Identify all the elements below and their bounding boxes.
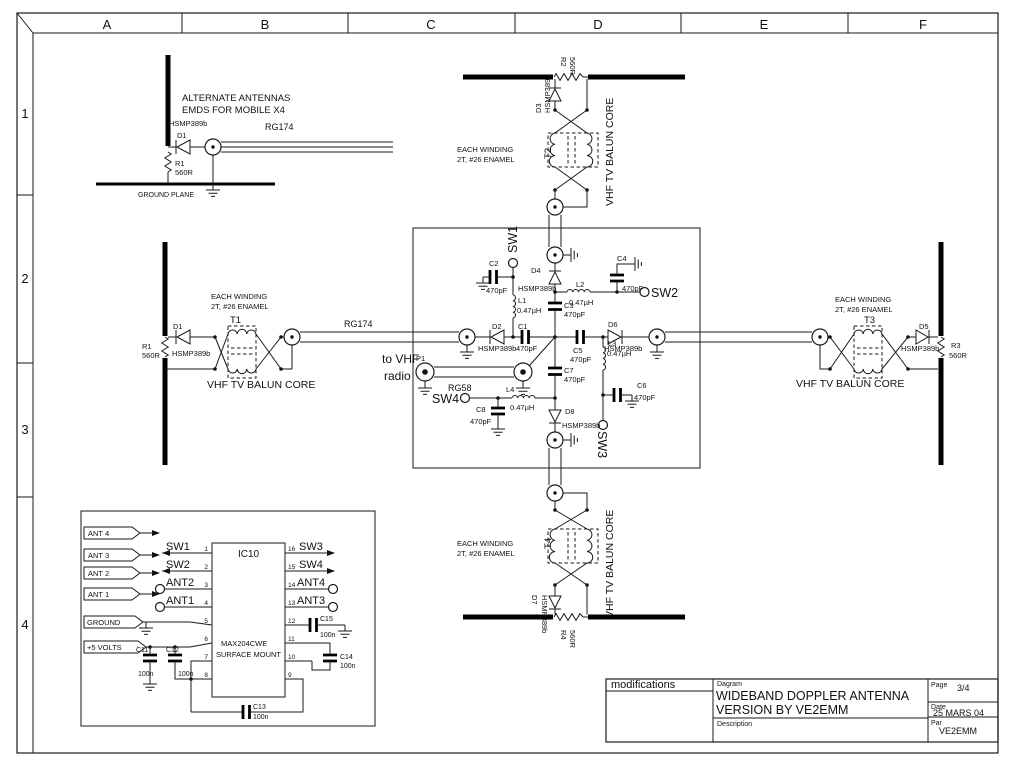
l3-label: L3 xyxy=(608,339,616,348)
c4-value: 470pF xyxy=(622,284,644,293)
c13-label: C13 xyxy=(253,704,266,711)
to-vhf-radio-note: to VHF radio xyxy=(382,352,419,383)
sw1-label: SW1 xyxy=(506,226,520,253)
d6-label: D6 xyxy=(608,320,618,329)
c2-label: C2 xyxy=(489,259,499,268)
title-line2: VERSION BY VE2EMM xyxy=(716,703,848,717)
pin5-number: 5 xyxy=(204,618,208,625)
pin1-number: 1 xyxy=(204,546,208,553)
c11-label: C11 xyxy=(136,647,148,654)
l1-label: L1 xyxy=(518,296,526,305)
description-label: Description xyxy=(717,721,752,728)
pin16-signal: SW3 xyxy=(299,541,323,553)
t4-balun-note: VHF TV BALUN CORE xyxy=(604,510,616,618)
c3-value: 470pF xyxy=(564,310,586,319)
t1-balun-note: VHF TV BALUN CORE xyxy=(207,379,315,391)
pin10-number: 10 xyxy=(288,654,296,661)
pin12-number: 12 xyxy=(288,618,296,625)
r2-value: 560R xyxy=(568,57,577,76)
t1-label: T1 xyxy=(230,315,241,326)
alt-diode-part: HSMP389b xyxy=(169,119,207,128)
grid-col-b: B xyxy=(261,17,270,32)
top-antenna-arm: R2 560R D3 HSMP389b T2 VHF TV BALUN CORE… xyxy=(457,57,685,247)
r2-label: R2 xyxy=(559,57,568,67)
switch-box: D4 HSMP389b C3 470pF C7 470pF D8 HSMP389… xyxy=(413,226,700,468)
c14-label: C14 xyxy=(340,654,353,661)
page-label: Page xyxy=(931,682,947,689)
c5-value: 470pF xyxy=(570,355,592,364)
modifications-label: modifications xyxy=(611,679,676,691)
flag-ant2: ANT 2 xyxy=(88,569,109,578)
d8-part: HSMP389b xyxy=(562,421,600,430)
l2-value: 0.47µH xyxy=(569,298,593,307)
c4-label: C4 xyxy=(617,254,627,263)
grid-row-1: 1 xyxy=(21,106,28,121)
flag-ant4: ANT 4 xyxy=(88,529,109,538)
c12-label: C12 xyxy=(166,647,179,654)
d2-part: HSMP389b xyxy=(478,344,516,353)
d3-label: D3 xyxy=(534,103,543,113)
ic10-mount: SURFACE MOUNT xyxy=(216,650,281,659)
flag-ant3: ANT 3 xyxy=(88,551,109,560)
pin3-signal: ANT2 xyxy=(166,577,194,589)
c15-value: 100n xyxy=(320,632,336,639)
right-antenna-arm: R3 560R D5 HSMP389b EACH WINDING 2T, #26… xyxy=(665,242,968,465)
d8-label: D8 xyxy=(565,407,575,416)
r3-value: 560R xyxy=(949,351,968,360)
title-line1: WIDEBAND DOPPLER ANTENNA xyxy=(716,689,910,703)
l4-label: L4 xyxy=(506,385,514,394)
c7-label: C7 xyxy=(564,366,574,375)
t3-winding-spec: 2T, #26 ENAMEL xyxy=(835,305,893,314)
page-value: 3/4 xyxy=(957,683,970,693)
ic10-label: IC10 xyxy=(238,549,260,560)
pin8-number: 8 xyxy=(204,672,208,679)
d5-label: D5 xyxy=(919,322,929,331)
c6-value: 470pF xyxy=(634,393,656,402)
d7-part: HSMP389b xyxy=(540,595,549,633)
grid-col-c: C xyxy=(426,17,435,32)
d3-part: HSMP389b xyxy=(543,75,552,113)
alternate-antenna-circuit: ALTERNATE ANTENNAS EMDS FOR MOBILE X4 HS… xyxy=(96,55,393,199)
t3-balun-note: VHF TV BALUN CORE xyxy=(796,378,904,390)
c1-label: C1 xyxy=(518,322,528,331)
par-value: VE2EMM xyxy=(939,726,977,736)
pin9-number: 9 xyxy=(288,672,292,679)
alt-diode-label: D1 xyxy=(177,131,187,140)
pin1-signal: SW1 xyxy=(166,541,190,553)
pin16-number: 16 xyxy=(288,546,296,553)
c14-value: 100n xyxy=(340,663,356,670)
grid-col-e: E xyxy=(760,17,769,32)
t2-winding-spec: 2T, #26 ENAMEL xyxy=(457,155,515,164)
grid-row-2: 2 xyxy=(21,271,28,286)
grid-col-d: D xyxy=(593,17,602,32)
l2-label: L2 xyxy=(576,280,584,289)
diagram-label: Dagram xyxy=(717,681,742,688)
sw4-label: SW4 xyxy=(432,392,459,406)
c6-label: C6 xyxy=(637,381,647,390)
alt-coax-label: RG174 xyxy=(265,122,294,132)
d1-part: HSMP389b xyxy=(172,349,210,358)
pin2-signal: SW2 xyxy=(166,559,190,571)
c5-label: C5 xyxy=(573,346,583,355)
t4-winding-spec: 2T, #26 ENAMEL xyxy=(457,549,515,558)
c12-value: 100n xyxy=(178,671,194,678)
c8-label: C8 xyxy=(476,405,486,414)
bottom-antenna-arm: R4 560R D7 HSMP389b T4 VHF TV BALUN CORE… xyxy=(457,448,685,649)
r4-label: R4 xyxy=(559,630,568,640)
t2-label: T2 xyxy=(543,148,554,159)
pin3-number: 3 xyxy=(204,582,208,589)
t4-label: T4 xyxy=(543,538,554,549)
r4-value: 560R xyxy=(568,630,577,649)
title-block: modifications Dagram WIDEBAND DOPPLER AN… xyxy=(606,679,998,742)
sw3-label: SW3 xyxy=(595,431,609,458)
t1-winding-note: EACH WINDING xyxy=(211,292,267,301)
c13-value: 100n xyxy=(253,714,269,721)
t2-balun-note: VHF TV BALUN CORE xyxy=(604,98,616,206)
rg174-label: RG174 xyxy=(344,319,373,329)
d5-part: HSMP389b xyxy=(901,344,939,353)
r1-label: R1 xyxy=(142,342,152,351)
l1-value: 0.47µH xyxy=(517,306,541,315)
pin6-number: 6 xyxy=(204,636,208,643)
c15-label: C15 xyxy=(320,616,333,623)
t1-winding-spec: 2T, #26 ENAMEL xyxy=(211,302,269,311)
grid-row-4: 4 xyxy=(21,617,28,632)
flag-ant1: ANT 1 xyxy=(88,590,109,599)
t4-winding-note: EACH WINDING xyxy=(457,539,513,548)
flag-ground: GROUND xyxy=(87,618,121,627)
d2-label: D2 xyxy=(492,322,502,331)
sw2-label: SW2 xyxy=(651,286,678,300)
pin14-signal: ANT4 xyxy=(297,577,325,589)
pin15-signal: SW4 xyxy=(299,559,323,571)
flag-5volts: +5 VOLTS xyxy=(87,643,122,652)
l3-value: 0.47µH xyxy=(607,349,631,358)
pin13-signal: ANT3 xyxy=(297,595,325,607)
date-value: 25 MARS 04 xyxy=(933,708,984,718)
pin15-number: 15 xyxy=(288,564,296,571)
schematic-canvas: A B C D E F 1 2 3 4 modifications Dagram… xyxy=(0,0,1015,766)
grid-col-a: A xyxy=(103,17,112,32)
pin2-number: 2 xyxy=(204,564,208,571)
grid-col-f: F xyxy=(919,17,927,32)
ground-plane-label: GROUND PLANE xyxy=(138,192,194,199)
pin13-number: 13 xyxy=(288,600,296,607)
r3-label: R3 xyxy=(951,341,961,350)
to-vhf-line2: radio xyxy=(384,369,411,383)
t3-winding-note: EACH WINDING xyxy=(835,295,891,304)
c2-value: 470pF xyxy=(486,286,508,295)
c8-value: 470pF xyxy=(470,417,492,426)
pin11-number: 11 xyxy=(288,636,295,643)
alt-note-1: ALTERNATE ANTENNAS xyxy=(182,93,290,104)
grid-row-3: 3 xyxy=(21,422,28,437)
pin4-signal: ANT1 xyxy=(166,595,194,607)
r1-value: 560R xyxy=(142,351,161,360)
pin7-number: 7 xyxy=(204,654,208,661)
c7-value: 470pF xyxy=(564,375,586,384)
d4-part: HSMP389b xyxy=(518,284,556,293)
ic10-part: MAX204CWE xyxy=(221,639,267,648)
d7-label: D7 xyxy=(530,595,539,605)
to-vhf-line1: to VHF xyxy=(382,352,419,366)
l4-value: 0.47µH xyxy=(510,403,534,412)
schematic-page: A B C D E F 1 2 3 4 modifications Dagram… xyxy=(0,0,1015,766)
c11-value: 100n xyxy=(138,671,154,678)
d1-label: D1 xyxy=(173,322,183,331)
pin4-number: 4 xyxy=(204,600,208,607)
pin14-number: 14 xyxy=(288,582,296,589)
rg58-label: RG58 xyxy=(448,383,472,393)
c1-value: 470pF xyxy=(516,344,538,353)
t3-label: T3 xyxy=(864,315,875,326)
t2-winding-note: EACH WINDING xyxy=(457,145,513,154)
d4-label: D4 xyxy=(531,266,541,275)
alt-res-value: 560R xyxy=(175,168,194,177)
alt-note-2: EMDS FOR MOBILE X4 xyxy=(182,105,285,116)
alt-res-label: R1 xyxy=(175,159,185,168)
ic-control-block: IC10 MAX204CWE SURFACE MOUNT ANT 4 ANT 3… xyxy=(81,511,375,726)
